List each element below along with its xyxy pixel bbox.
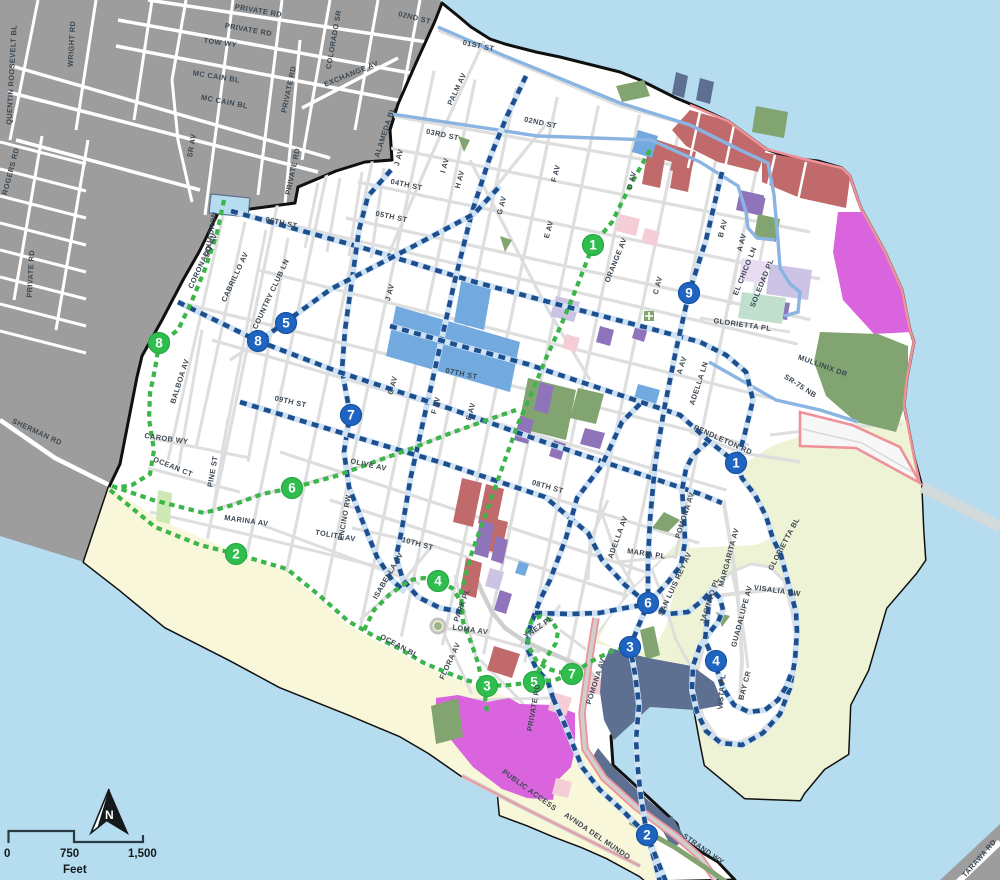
svg-text:7: 7 xyxy=(347,408,355,423)
svg-text:1: 1 xyxy=(732,456,740,471)
svg-text:1: 1 xyxy=(589,238,597,253)
svg-text:2: 2 xyxy=(643,828,651,843)
svg-text:8: 8 xyxy=(155,336,163,351)
svg-text:N: N xyxy=(105,808,114,822)
svg-text:4: 4 xyxy=(434,574,442,589)
svg-text:5: 5 xyxy=(282,316,290,331)
svg-text:6: 6 xyxy=(644,596,652,611)
svg-text:4: 4 xyxy=(712,654,720,669)
svg-text:Feet: Feet xyxy=(63,864,87,876)
svg-text:750: 750 xyxy=(60,848,79,860)
svg-text:9: 9 xyxy=(685,286,693,301)
svg-text:3: 3 xyxy=(483,679,491,694)
svg-text:0: 0 xyxy=(4,848,10,860)
svg-text:6: 6 xyxy=(288,481,296,496)
svg-text:1,500: 1,500 xyxy=(128,848,157,860)
svg-text:8: 8 xyxy=(254,334,262,349)
svg-text:7: 7 xyxy=(568,667,576,682)
svg-text:3: 3 xyxy=(626,640,634,655)
svg-text:2: 2 xyxy=(232,547,240,562)
